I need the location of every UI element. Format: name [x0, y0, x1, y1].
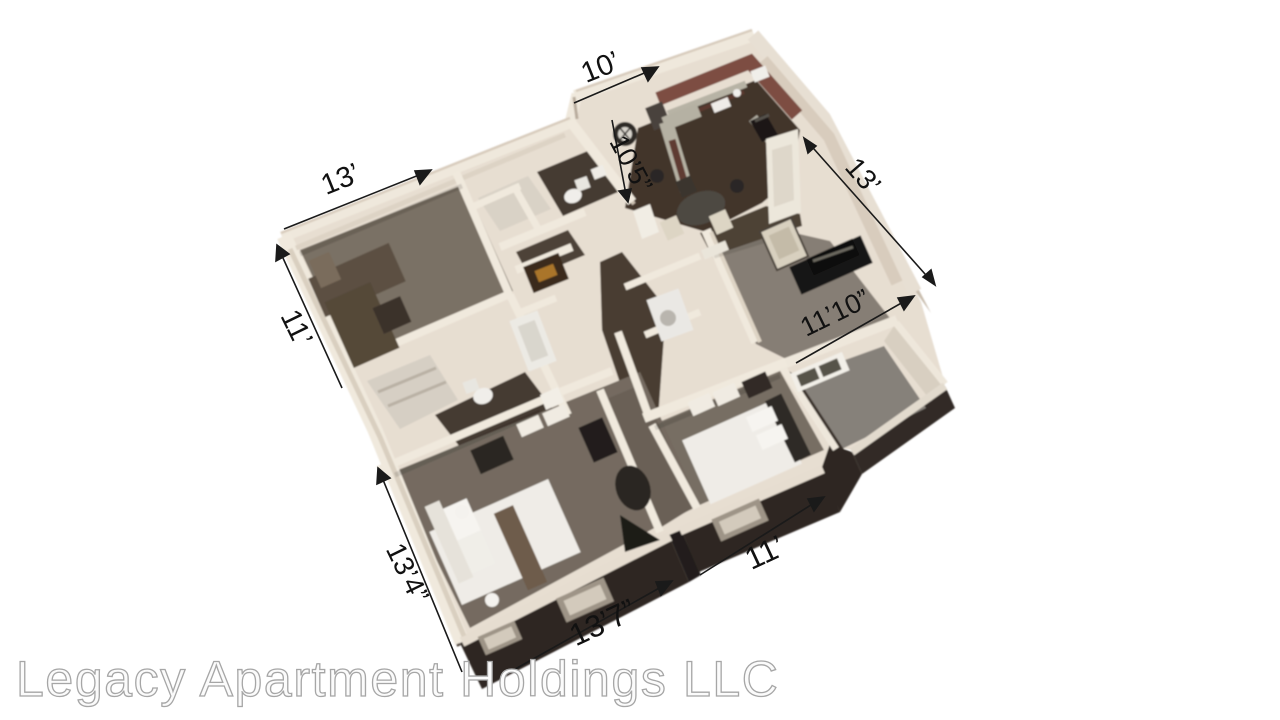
svg-text:Legacy Apartment Holdings LLC: Legacy Apartment Holdings LLC [16, 651, 780, 707]
